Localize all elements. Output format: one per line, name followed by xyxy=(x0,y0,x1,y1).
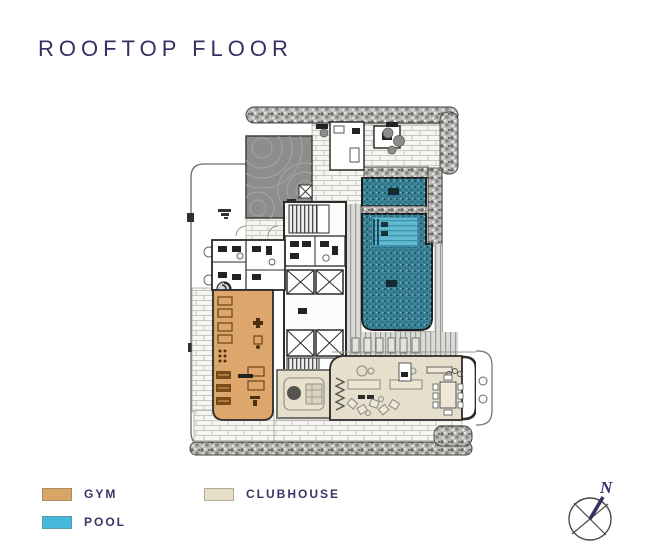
core-toilets xyxy=(285,236,345,266)
legend-label-gym: GYM xyxy=(84,487,117,501)
gym-area xyxy=(213,290,273,420)
kids-pool xyxy=(362,178,426,206)
compass: N xyxy=(558,475,643,555)
lap-pool xyxy=(372,217,418,247)
clubhouse-end-wall xyxy=(462,357,476,419)
pool-color-swatch xyxy=(42,516,72,529)
pool-divider xyxy=(362,206,426,214)
clubhouse-color-swatch xyxy=(204,488,234,501)
legend-item-clubhouse: CLUBHOUSE xyxy=(204,487,340,501)
gym-color-swatch xyxy=(42,488,72,501)
compass-north-label: N xyxy=(599,478,613,497)
pool-area xyxy=(362,178,432,330)
legend-item-pool: POOL xyxy=(42,515,126,529)
clubhouse-balcony xyxy=(476,351,492,425)
stairs-top xyxy=(289,205,317,233)
drain-icon xyxy=(218,209,231,219)
legend-item-gym: GYM xyxy=(42,487,117,501)
rooftop-floor-page: ROOFTOP FLOOR xyxy=(0,0,660,559)
legend-label-clubhouse: CLUBHOUSE xyxy=(246,487,340,501)
elevator-core xyxy=(284,202,346,380)
main-pool xyxy=(362,214,432,330)
legend-label-pool: POOL xyxy=(84,515,126,529)
compass-needle xyxy=(590,497,603,519)
